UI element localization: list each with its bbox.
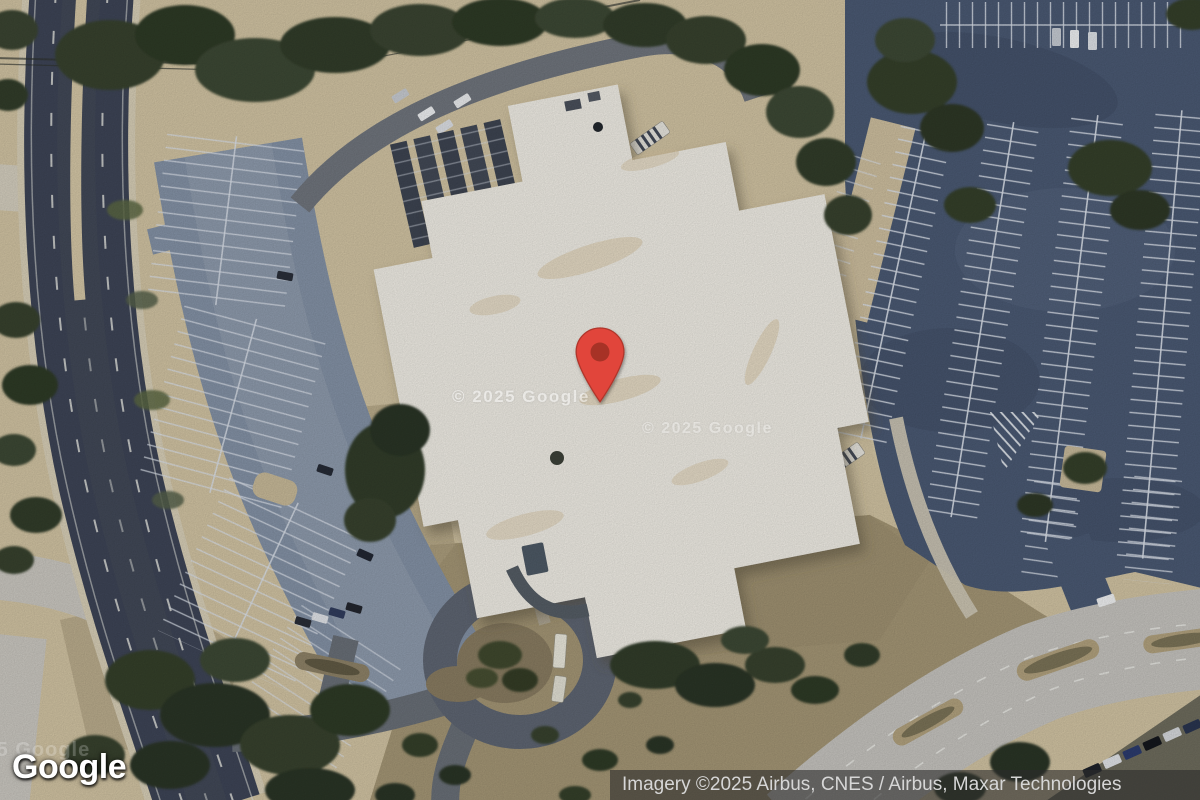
satellite-map-canvas[interactable] [0, 0, 1200, 800]
google-logo[interactable]: Google [12, 748, 126, 787]
attribution-bar: Imagery ©2025 Airbus, CNES / Airbus, Max… [610, 770, 1200, 800]
map-viewport[interactable]: © 2025 Google © 2025 Google © 2025 Googl… [0, 0, 1200, 800]
map-pin-inner-dot [591, 343, 610, 362]
attribution-text: Imagery ©2025 Airbus, CNES / Airbus, Max… [622, 774, 1121, 796]
